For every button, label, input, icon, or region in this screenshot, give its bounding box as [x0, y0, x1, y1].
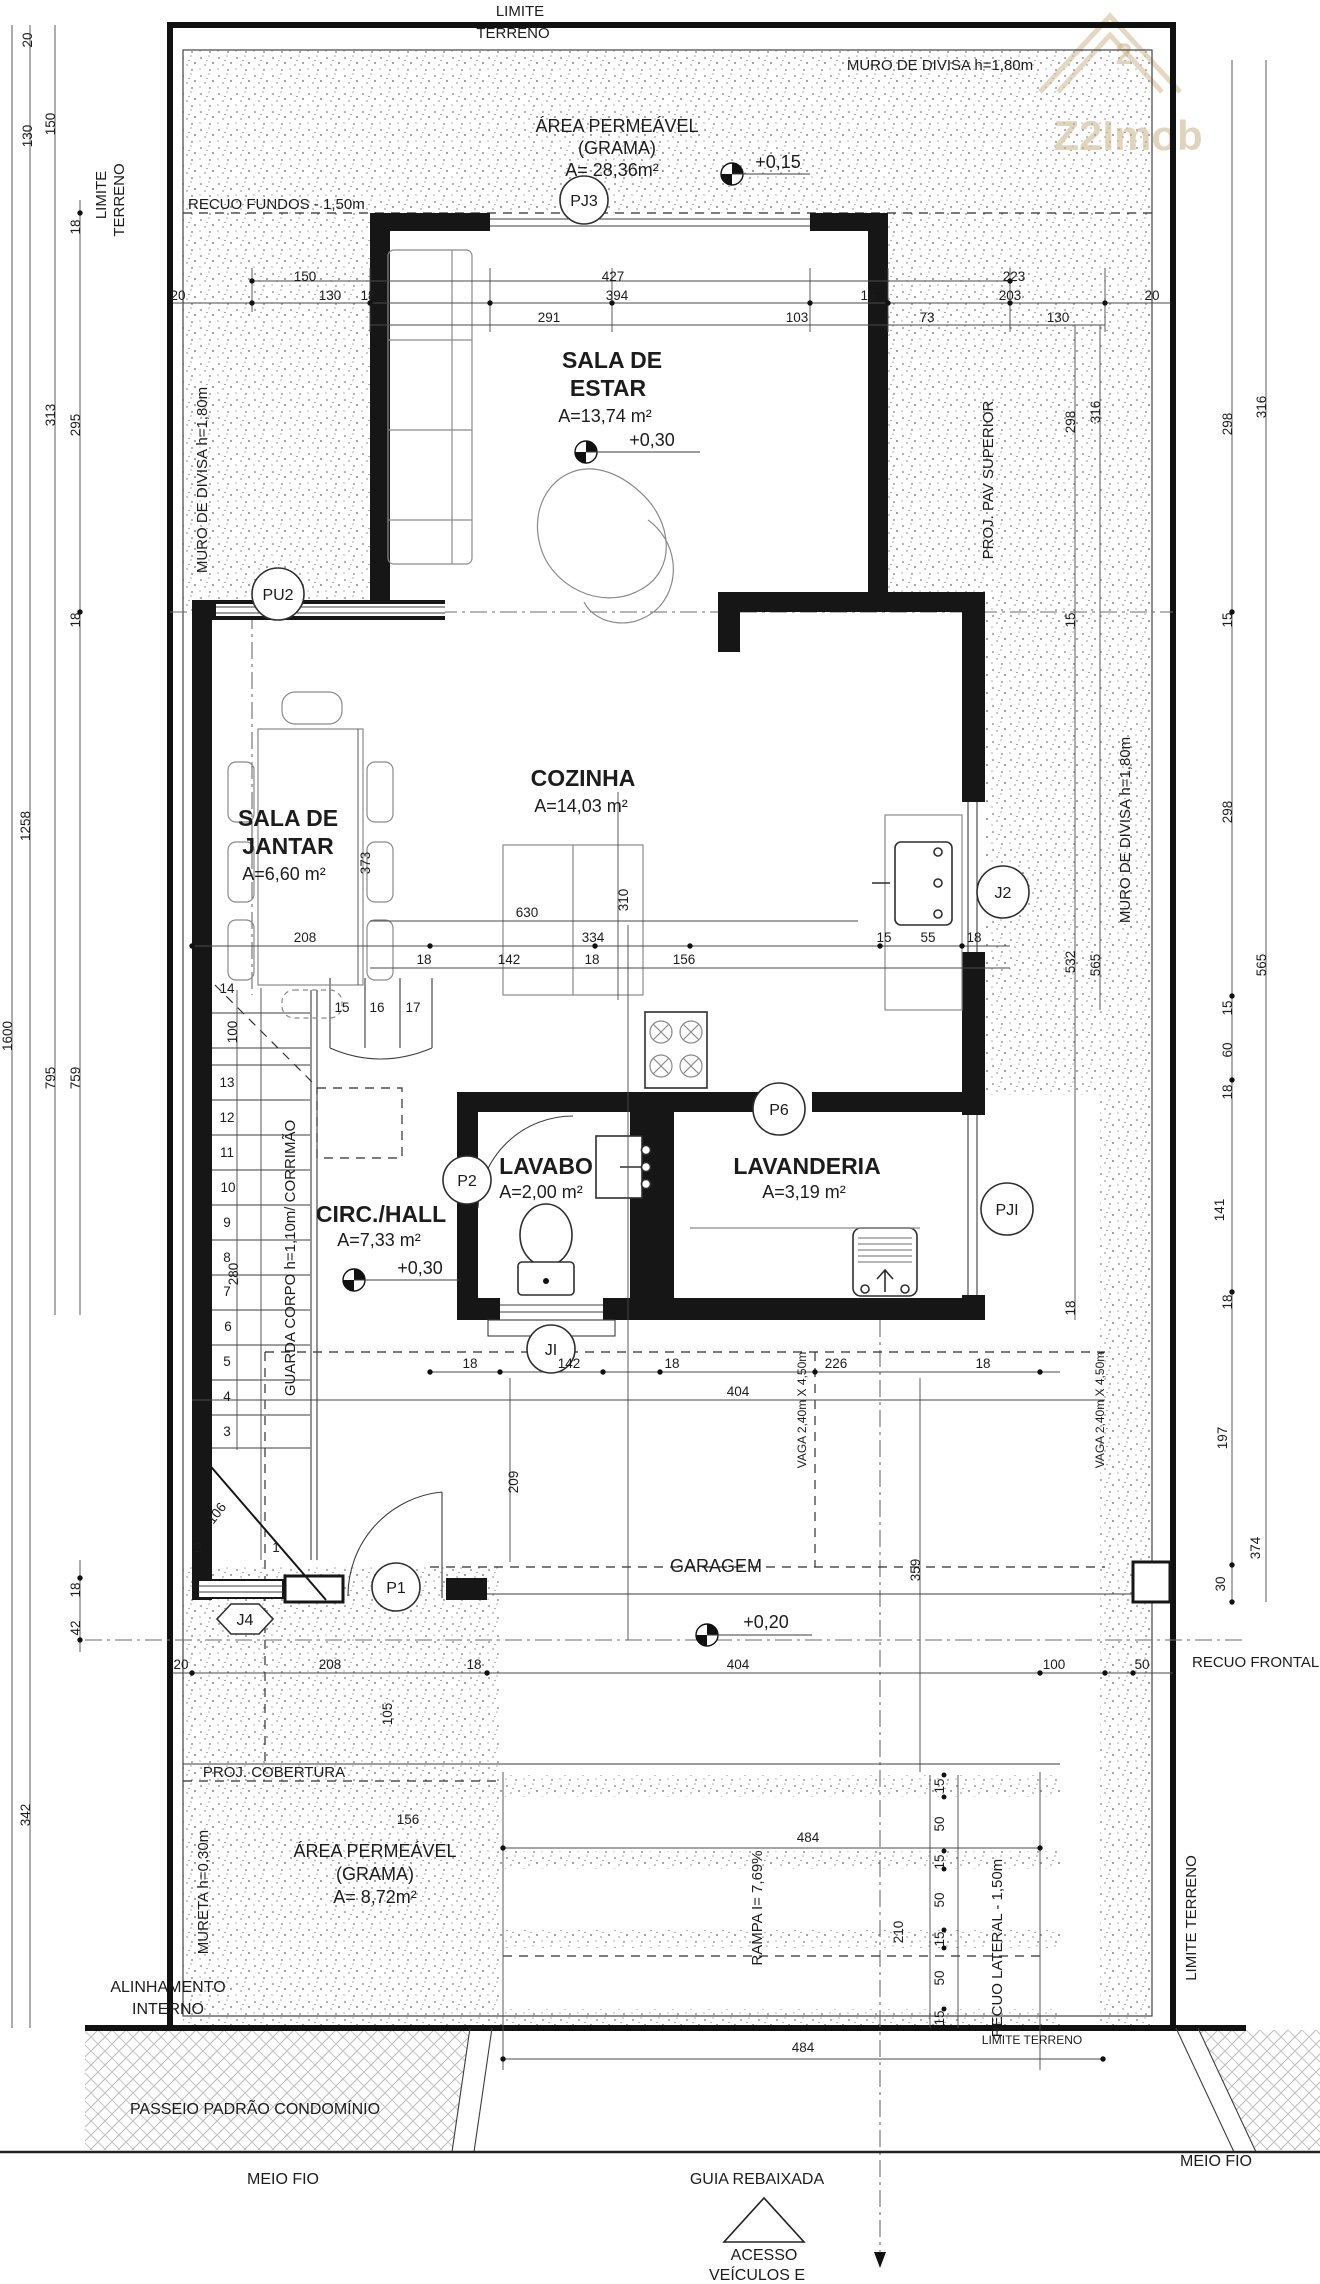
svg-text:18: 18	[68, 1582, 83, 1597]
svg-text:295: 295	[68, 414, 83, 437]
window-j4	[198, 1580, 283, 1598]
svg-text:208: 208	[319, 1657, 342, 1672]
guarda-corpo: GUARDA CORPO h=1,10m/ CORRIMÃO	[282, 1120, 299, 1396]
svg-text:42: 42	[68, 1620, 83, 1635]
svg-text:291: 291	[538, 310, 561, 325]
svg-text:P6: P6	[769, 1102, 789, 1119]
svg-text:310: 310	[616, 889, 631, 912]
svg-text:18: 18	[360, 288, 375, 303]
svg-text:+0,30: +0,30	[629, 430, 675, 450]
svg-text:73: 73	[919, 310, 934, 325]
floor-plan-svg: 2 Z2Imob	[0, 0, 1320, 2284]
svg-text:PJ3: PJ3	[570, 193, 598, 210]
svg-text:1600: 1600	[0, 1021, 15, 1051]
svg-text:15: 15	[1220, 1000, 1235, 1015]
svg-text:15: 15	[1220, 612, 1235, 627]
svg-text:13: 13	[219, 1075, 234, 1090]
svg-text:18: 18	[1220, 1294, 1235, 1309]
tag-pj3: PJ3	[560, 176, 608, 224]
label-hall: CIRC./HALL	[316, 1201, 446, 1227]
tag-p2: P2	[443, 1156, 491, 1204]
svg-text:142: 142	[558, 1356, 581, 1371]
floor-plan-page: 2 Z2Imob	[0, 0, 1320, 2284]
svg-text:374: 374	[1248, 1536, 1263, 1559]
svg-text:PU2: PU2	[262, 587, 293, 604]
svg-text:394: 394	[606, 288, 629, 303]
svg-text:A=13,74 m²: A=13,74 m²	[558, 406, 652, 426]
mureta: MURETA h=0,30m	[195, 1830, 212, 1954]
svg-text:141: 141	[1212, 1199, 1227, 1222]
svg-text:2: 2	[194, 1540, 202, 1555]
svg-text:404: 404	[727, 1384, 750, 1399]
svg-text:18: 18	[462, 1356, 477, 1371]
svg-text:18: 18	[68, 219, 83, 234]
vaga-1: VAGA 2,40m X 4,50m	[795, 1352, 809, 1469]
decor-rug	[537, 469, 666, 598]
svg-text:P2: P2	[457, 1173, 477, 1190]
muro-divisa-left: MURO DE DIVISA h=1,80m	[194, 387, 211, 573]
svg-text:209: 209	[506, 1471, 521, 1494]
svg-text:316: 316	[1088, 401, 1103, 424]
svg-text:15: 15	[334, 1000, 349, 1015]
svg-text:P1: P1	[386, 1580, 406, 1597]
muro-divisa-right: MURO DE DIVISA h=1,80m	[1117, 737, 1134, 923]
svg-text:15: 15	[876, 930, 891, 945]
svg-text:18: 18	[966, 930, 981, 945]
svg-text:ESTAR: ESTAR	[570, 375, 647, 401]
guia-rebaixada: GUIA REBAIXADA	[690, 2171, 825, 2188]
svg-text:103: 103	[786, 310, 809, 325]
svg-text:20: 20	[173, 1657, 188, 1672]
svg-text:55: 55	[920, 930, 935, 945]
svg-text:565: 565	[1254, 954, 1269, 977]
svg-text:226: 226	[825, 1356, 848, 1371]
label-sala-estar: SALA DE	[562, 347, 662, 373]
svg-text:313: 313	[43, 404, 58, 427]
svg-text:A=14,03 m²: A=14,03 m²	[534, 796, 628, 816]
svg-text:4: 4	[223, 1389, 231, 1404]
svg-text:10: 10	[220, 1180, 235, 1195]
tag-pji: PJI	[981, 1183, 1033, 1235]
label-lavanderia: LAVANDERIA	[733, 1153, 880, 1179]
svg-text:210: 210	[891, 1921, 906, 1944]
svg-text:334: 334	[582, 930, 605, 945]
svg-text:759: 759	[68, 1067, 83, 1090]
svg-text:15: 15	[860, 288, 875, 303]
label-sala-jantar: SALA DE	[238, 805, 338, 831]
svg-text:150: 150	[43, 113, 58, 136]
svg-text:8: 8	[223, 1250, 231, 1265]
svg-text:A=2,00 m²: A=2,00 m²	[499, 1182, 583, 1202]
svg-text:50: 50	[932, 1970, 947, 1985]
svg-text:20: 20	[170, 288, 185, 303]
svg-text:+0,15: +0,15	[755, 152, 801, 172]
limite-terreno-right: LIMITE TERRENO	[1183, 1855, 1200, 1981]
svg-text:A= 8,72m²: A= 8,72m²	[333, 1887, 417, 1907]
svg-text:INTERNO: INTERNO	[132, 2001, 204, 2018]
proj-cobertura: PROJ. COBERTURA	[203, 1764, 345, 1781]
alinhamento-interno: ALINHAMENTO	[110, 1979, 225, 1996]
svg-text:130: 130	[319, 288, 342, 303]
svg-text:JANTAR: JANTAR	[242, 833, 334, 859]
svg-text:316: 316	[1254, 396, 1269, 419]
svg-text:15: 15	[932, 1778, 947, 1793]
svg-text:7: 7	[223, 1284, 231, 1299]
kitchen-island	[503, 845, 643, 995]
label-garagem: GARAGEM	[670, 1556, 762, 1576]
acesso: ACESSO	[731, 2247, 798, 2264]
svg-text:18: 18	[1220, 1084, 1235, 1099]
svg-text:6: 6	[224, 1319, 232, 1334]
svg-text:795: 795	[43, 1067, 58, 1090]
svg-text:50: 50	[932, 1816, 947, 1831]
svg-text:+0,20: +0,20	[743, 1612, 789, 1632]
svg-text:197: 197	[1215, 1427, 1230, 1450]
svg-text:15: 15	[932, 2010, 947, 2025]
svg-text:3: 3	[223, 1424, 231, 1439]
svg-text:TERRENO: TERRENO	[111, 163, 128, 236]
svg-text:156: 156	[673, 952, 696, 967]
stove	[645, 1012, 707, 1088]
svg-text:VEÍCULOS E: VEÍCULOS E	[709, 2265, 805, 2284]
svg-text:532: 532	[1063, 951, 1078, 974]
svg-text:100: 100	[225, 1021, 240, 1044]
svg-text:298: 298	[1220, 413, 1235, 436]
kitchen-sink	[872, 815, 962, 1010]
svg-text:A=7,33 m²: A=7,33 m²	[337, 1230, 421, 1250]
svg-text:130: 130	[20, 125, 35, 148]
tag-p1: P1	[372, 1563, 420, 1611]
svg-text:(GRAMA): (GRAMA)	[578, 138, 656, 158]
svg-text:630: 630	[516, 905, 539, 920]
svg-text:JI: JI	[545, 1342, 557, 1359]
svg-text:150: 150	[294, 269, 317, 284]
svg-text:11: 11	[220, 1145, 234, 1160]
window-pj3	[490, 215, 810, 229]
svg-text:60: 60	[1220, 1042, 1235, 1057]
svg-text:18: 18	[664, 1356, 679, 1371]
svg-text:15: 15	[932, 1854, 947, 1869]
passeio: PASSEIO PADRÃO CONDOMÍNIO	[130, 2098, 380, 2118]
muro-divisa-top: MURO DE DIVISA h=1,80m	[847, 57, 1033, 74]
svg-text:18: 18	[466, 1657, 481, 1672]
svg-text:16: 16	[369, 1000, 384, 1015]
label-lavabo: LAVABO	[499, 1153, 593, 1179]
svg-text:12: 12	[219, 1110, 234, 1125]
svg-text:J2: J2	[995, 885, 1012, 902]
meio-fio-right: MEIO FIO	[1180, 2153, 1252, 2170]
svg-text:373: 373	[358, 852, 373, 875]
recuo-lateral: RECUO LATERAL - 1,50m	[989, 1859, 1006, 2037]
svg-text:280: 280	[226, 1263, 241, 1286]
limite-terreno-bottom: LIMITE TERRENO	[982, 2033, 1082, 2047]
tag-p6: P6	[753, 1083, 805, 1135]
svg-text:TERRENO: TERRENO	[476, 25, 549, 42]
svg-text:50: 50	[1134, 1657, 1149, 1672]
svg-text:203: 203	[999, 288, 1022, 303]
svg-text:18: 18	[416, 952, 431, 967]
svg-text:1: 1	[272, 1540, 280, 1555]
meio-fio-left: MEIO FIO	[247, 2171, 319, 2188]
svg-text:427: 427	[602, 269, 625, 284]
label-grama-bottom: ÁREA PERMEÁVEL	[293, 1841, 456, 1861]
washer	[690, 1228, 920, 1296]
svg-text:9: 9	[223, 1215, 231, 1230]
proj-pav-superior: PROJ. PAV SUPERIOR	[980, 401, 997, 560]
svg-text:20: 20	[1144, 288, 1159, 303]
svg-text:20: 20	[20, 32, 35, 47]
svg-text:A=6,60 m²: A=6,60 m²	[242, 864, 326, 884]
svg-text:142: 142	[498, 952, 521, 967]
rampa: RAMPA I= 7,69%	[749, 1850, 766, 1965]
tag-j2: J2	[977, 866, 1029, 918]
svg-text:156: 156	[397, 1812, 420, 1827]
svg-text:15: 15	[1063, 612, 1078, 627]
svg-text:484: 484	[797, 1830, 820, 1845]
svg-text:105: 105	[380, 1703, 395, 1726]
recuo-fundos: RECUO FUNDOS - 1,50m	[188, 196, 365, 213]
svg-text:30: 30	[1213, 1576, 1228, 1591]
watermark-sup: 2	[1116, 38, 1133, 71]
svg-text:PJI: PJI	[995, 1202, 1018, 1219]
limite-terreno-top: LIMITE	[496, 3, 544, 20]
svg-text:17: 17	[405, 1000, 420, 1015]
svg-text:404: 404	[727, 1657, 750, 1672]
svg-text:18: 18	[68, 612, 83, 627]
window-pu2	[216, 604, 445, 616]
label-grama-top: ÁREA PERMEÁVEL	[535, 116, 698, 136]
svg-text:18: 18	[1063, 1300, 1078, 1315]
svg-text:(GRAMA): (GRAMA)	[336, 1864, 414, 1884]
svg-text:298: 298	[1220, 801, 1235, 824]
label-cozinha: COZINHA	[531, 765, 636, 791]
svg-text:359: 359	[908, 1559, 923, 1582]
tag-pu2: PU2	[252, 568, 304, 620]
svg-text:130: 130	[1047, 310, 1070, 325]
svg-text:298: 298	[1063, 411, 1078, 434]
svg-text:+0,30: +0,30	[397, 1258, 443, 1278]
svg-text:484: 484	[792, 2040, 815, 2055]
recuo-frontal: RECUO FRONTAL -	[1192, 1654, 1320, 1671]
vaga-2: VAGA 2,40m X 4,50m	[1093, 1352, 1107, 1469]
svg-text:A= 28,36m²: A= 28,36m²	[565, 160, 659, 180]
access-triangle-icon	[724, 2198, 804, 2242]
svg-text:208: 208	[294, 930, 317, 945]
toilet	[518, 1204, 574, 1295]
svg-text:50: 50	[932, 1892, 947, 1907]
svg-text:342: 342	[18, 1804, 33, 1827]
svg-text:15: 15	[932, 1931, 947, 1946]
svg-text:A=3,19 m²: A=3,19 m²	[762, 1182, 846, 1202]
lavabo-sink	[596, 1136, 651, 1198]
watermark-brand: Z2Imob	[1053, 112, 1202, 159]
svg-text:1258: 1258	[18, 811, 33, 841]
svg-text:223: 223	[1003, 269, 1026, 284]
svg-text:J4: J4	[237, 1612, 254, 1629]
svg-text:14: 14	[219, 981, 235, 996]
sofa	[388, 250, 472, 564]
limite-terreno-left: LIMITE	[93, 171, 110, 219]
svg-text:565: 565	[1088, 954, 1103, 977]
svg-text:18: 18	[975, 1356, 990, 1371]
svg-text:100: 100	[1043, 1657, 1066, 1672]
svg-text:5: 5	[223, 1354, 231, 1369]
svg-text:18: 18	[584, 952, 599, 967]
